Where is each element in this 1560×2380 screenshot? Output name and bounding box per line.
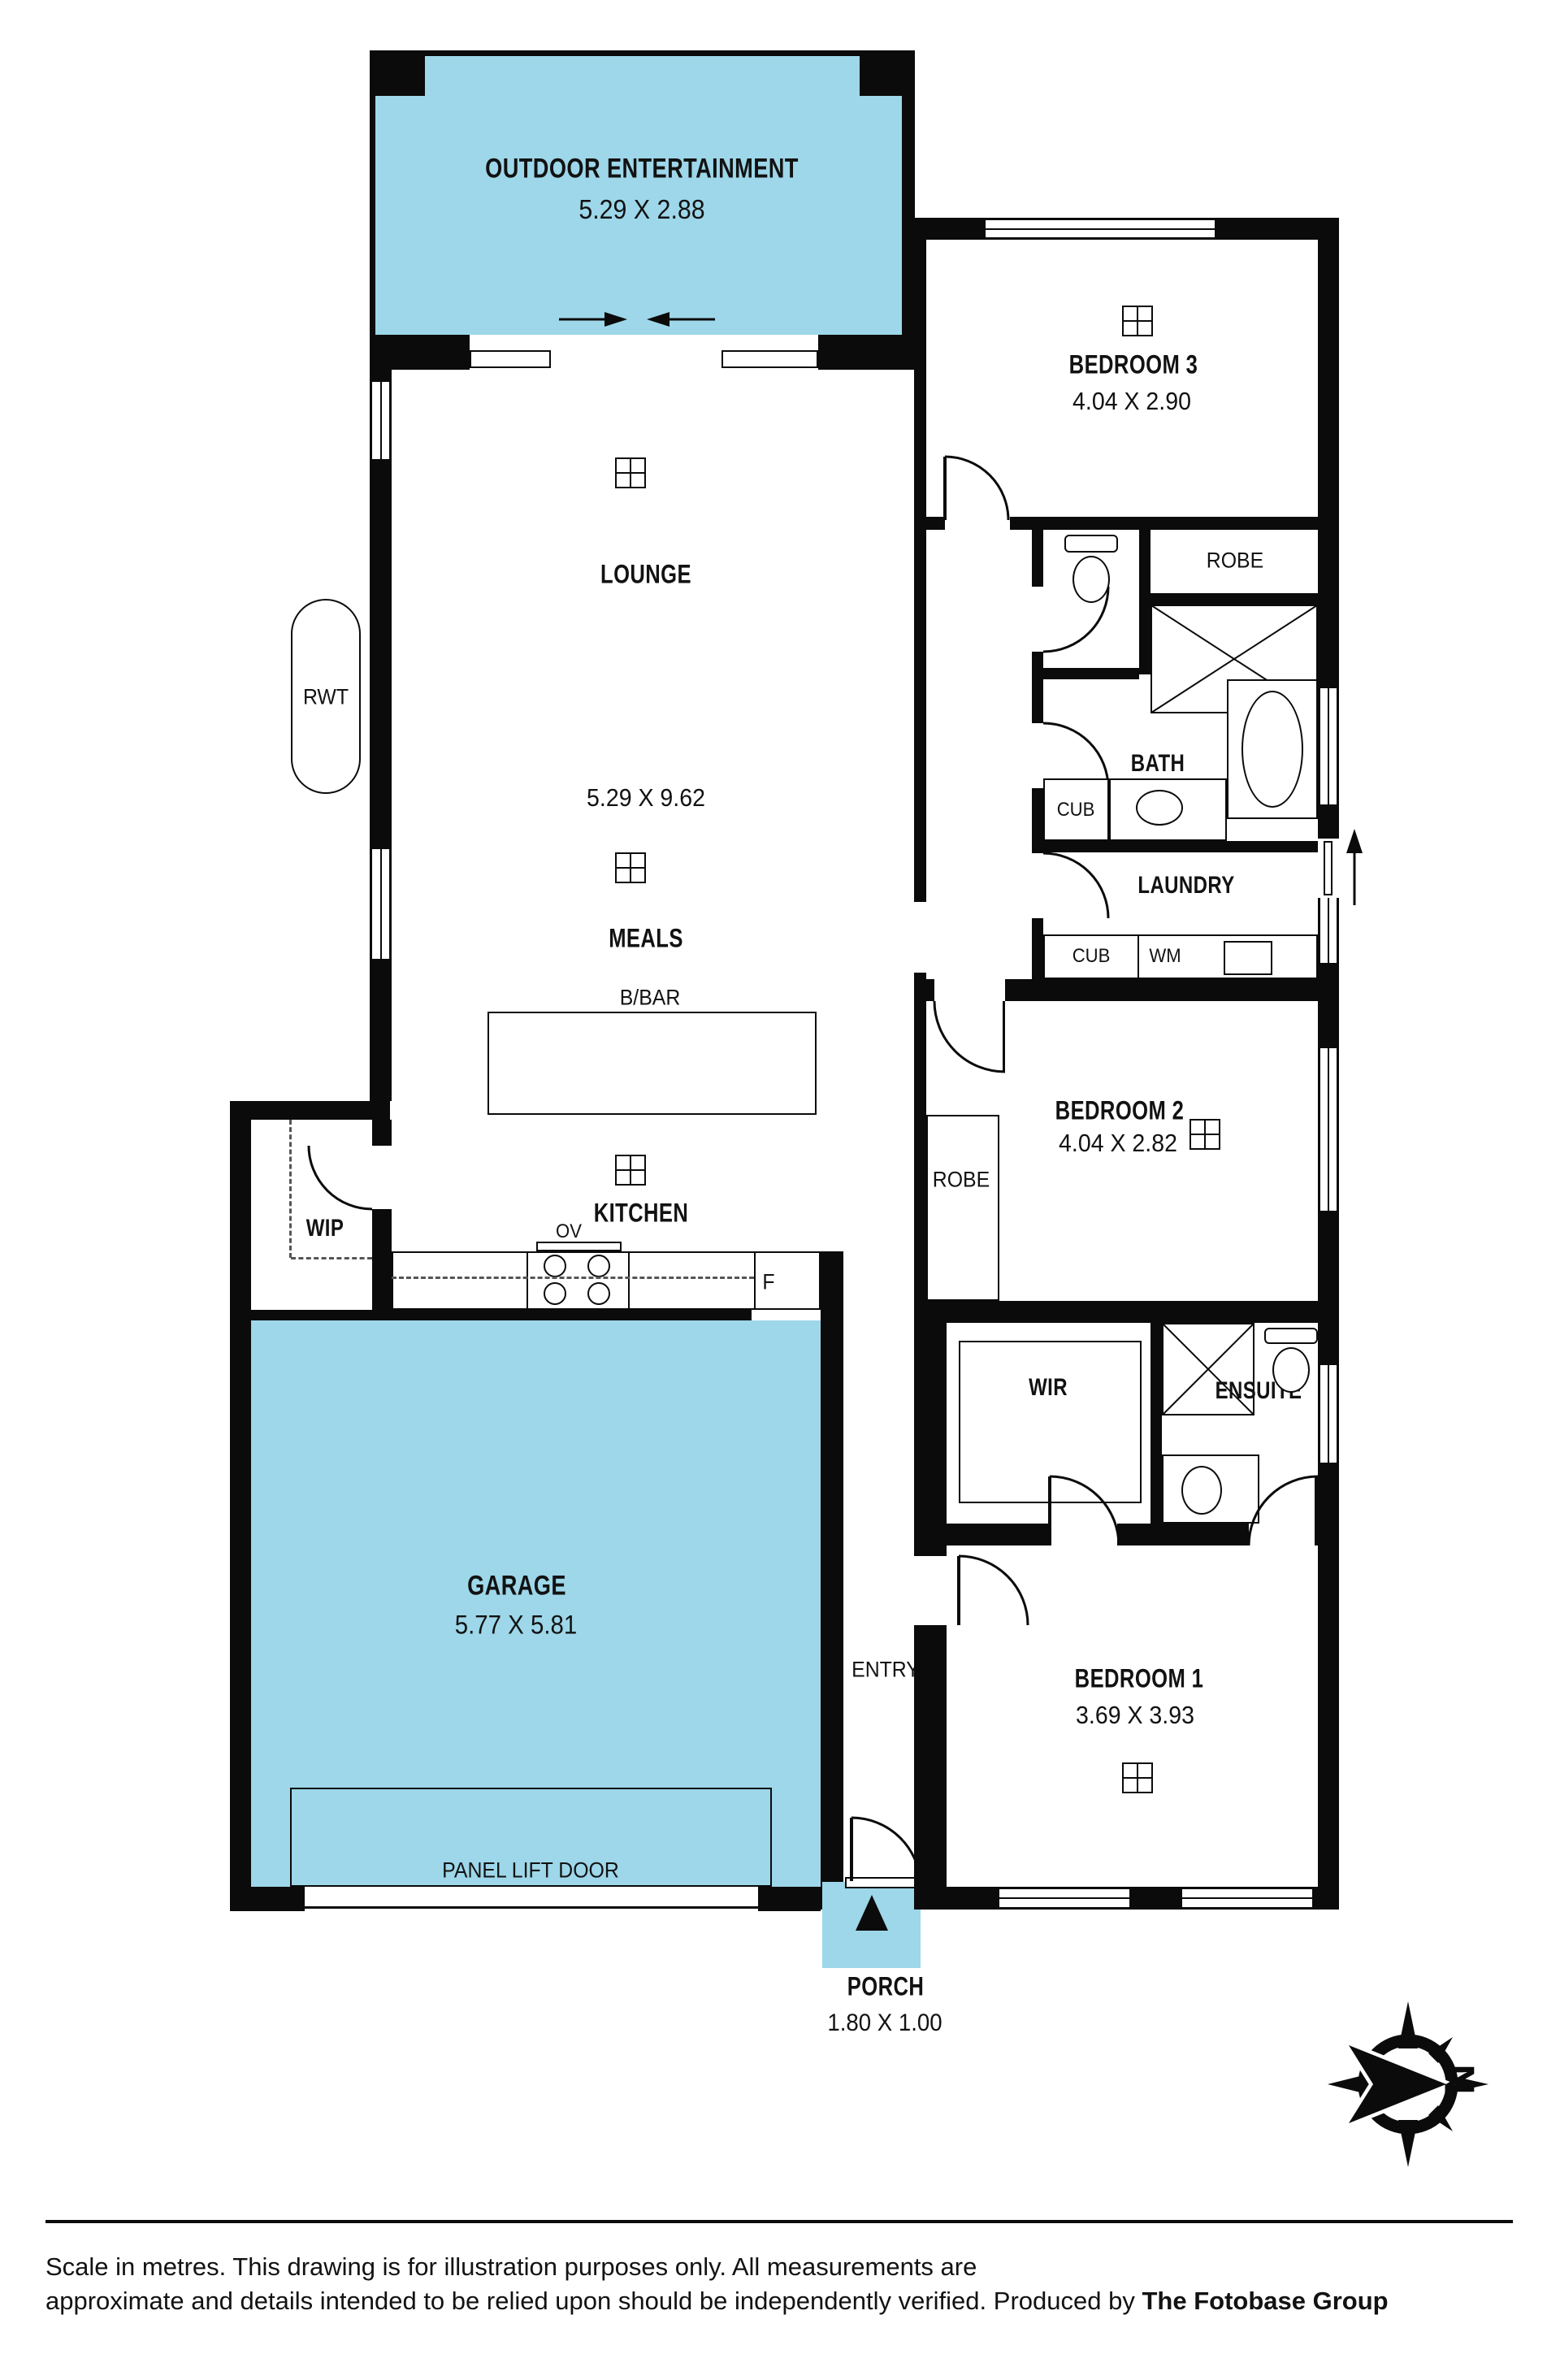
compass-north-icon: N [1324,1995,1503,2174]
wall [1150,593,1339,605]
disclaimer-line1: Scale in metres. This drawing is for ill… [45,2252,977,2282]
wall [372,1209,392,1310]
oven-box [536,1242,622,1251]
wall [372,1120,392,1146]
wall [1032,788,1043,853]
bench-divider [526,1251,528,1310]
door-opening [914,1556,947,1625]
overhead-cupboard-line [392,1277,754,1279]
door-leaf [1003,1001,1005,1072]
room-label: BEDROOM 3 [1069,350,1198,380]
window [1182,1887,1312,1910]
bench-divider [1137,934,1139,979]
wm-label: WM [1149,945,1181,968]
door-direction-arrow [1342,827,1367,908]
window [1318,1365,1339,1463]
wall [1150,1323,1162,1524]
door-arc [1249,1476,1318,1545]
wall [758,1887,821,1911]
cooktop-burner [544,1255,566,1277]
room-label: GARAGE [467,1571,566,1602]
window [370,382,392,459]
door-opening [934,979,1005,1001]
sink [1181,1466,1222,1515]
laundry-trough [1224,941,1272,975]
entry-marker-icon [856,1895,888,1931]
room-label: BEDROOM 1 [1075,1664,1204,1694]
wall [914,218,926,902]
produced-by-text: Produced by [994,2287,1135,2315]
room-label: OUTDOOR ENTERTAINMENT [485,154,799,185]
pantry-shelf-line [291,1257,372,1259]
door-arc [959,1556,1028,1625]
ceiling-fan-icon [615,457,646,488]
cub-label: CUB [1057,799,1095,822]
sliding-door-panel [470,350,551,368]
wall [821,1251,843,1887]
robe-label: ROBE [933,1168,990,1193]
window [1318,688,1339,804]
wall [902,50,915,340]
wall [1139,530,1150,674]
door-arc [851,1818,921,1887]
door-arc [934,1001,1005,1072]
cooktop-burner [544,1282,566,1305]
wall [1032,530,1043,587]
ceiling-fan-icon [615,1155,646,1186]
breakfast-bar-label: B/BAR [620,986,681,1011]
door-arc [945,457,1008,520]
door-leaf [957,1556,960,1625]
wall [914,973,926,1301]
wall [370,50,425,96]
room-dims: 4.04 X 2.82 [1059,1129,1177,1158]
toilet-cistern [1264,1328,1318,1344]
room-dims: 5.77 X 5.81 [455,1611,578,1641]
room-dims: 5.29 X 2.88 [578,194,704,225]
wall [230,1101,251,1911]
wall [1043,668,1139,679]
room-dims: 4.04 X 2.90 [1072,387,1191,416]
wall [230,1887,305,1911]
pantry-shelf-line [289,1120,292,1258]
robe-cupboard [926,1115,999,1301]
wall [914,1301,1339,1323]
wall [1043,841,1318,852]
ceiling-fan-icon [1122,1762,1153,1793]
toilet-bowl [1072,556,1110,603]
island-bench [487,1012,817,1115]
door-arc [309,1146,372,1209]
cooktop-burner [587,1255,610,1277]
wall [370,50,375,340]
door-leaf [850,1818,853,1881]
room-label: ENTRY [851,1658,920,1683]
garage-door-sill [305,1906,758,1909]
window [999,1887,1129,1910]
wall [230,1310,821,1320]
door-leaf [943,457,947,520]
bench-divider [754,1251,756,1310]
room-label: WIR [1029,1374,1068,1402]
bathtub-basin [1241,691,1303,808]
room-label: KITCHEN [594,1199,689,1229]
room-label: LOUNGE [600,560,691,590]
room-label: PORCH [847,1972,924,2002]
cub-label: CUB [1072,945,1111,968]
divider-rule [45,2220,1513,2223]
wall [230,1101,390,1120]
room-label: BEDROOM 2 [1055,1096,1185,1126]
external-door-leaf [1324,841,1332,895]
room-dims: 3.69 X 3.93 [1076,1701,1194,1730]
window [370,849,392,959]
panel-lift-door-label: PANEL LIFT DOOR [442,1858,619,1884]
door-leaf [1048,1476,1051,1545]
north-letter: N [1435,2064,1482,2095]
floor-plan: OUTDOOR ENTERTAINMENT 5.29 X 2.88 RWT LO… [0,0,1560,2380]
window [1318,898,1339,963]
door-arc [1043,853,1108,918]
disclaimer-text: approximate and details intended to be r… [45,2287,986,2315]
wall [1032,652,1043,723]
sliding-door-panel [721,350,818,368]
room-label: LAUNDRY [1137,872,1234,900]
ceiling-fan-icon [615,852,646,883]
toilet-cistern [1064,535,1118,553]
room-dims: 1.80 X 1.00 [827,2009,942,2037]
room-label: BATH [1131,750,1185,778]
sink [1136,790,1183,826]
disclaimer-line2: approximate and details intended to be r… [45,2287,1389,2316]
room-dims: 5.29 X 9.62 [587,783,705,813]
door-opening [752,1310,821,1320]
cooktop-burner [587,1282,610,1305]
toilet-bowl [1272,1347,1310,1393]
fridge-label: F [762,1270,774,1295]
room-label: MEALS [609,924,683,954]
slide-arrow-right-icon [559,309,627,330]
window [1318,1048,1339,1211]
brand-name: The Fotobase Group [1142,2287,1388,2315]
bench-divider [628,1251,630,1310]
robe-label: ROBE [1207,548,1263,574]
door-leaf [1315,1476,1318,1545]
wall [370,50,914,56]
window [986,218,1215,240]
room-label: WIP [306,1215,344,1242]
oven-label: OV [556,1220,582,1243]
ceiling-fan-icon [1189,1119,1220,1150]
wall [1032,918,1043,979]
door-arc [1050,1476,1119,1545]
slide-arrow-left-icon [647,309,715,330]
ceiling-fan-icon [1122,306,1153,336]
rwt-label: RWT [303,685,349,710]
